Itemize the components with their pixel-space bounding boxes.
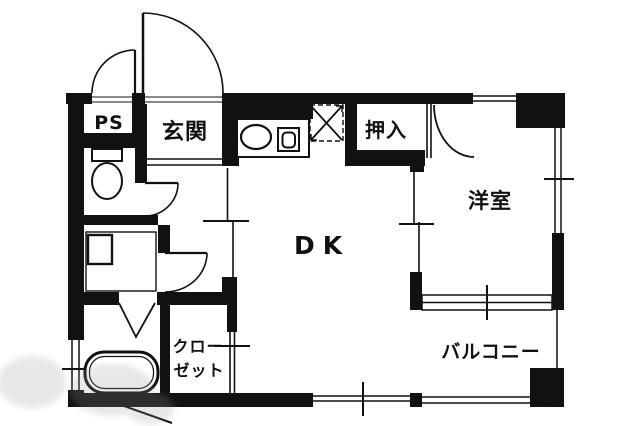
gas-stove-burner bbox=[283, 133, 296, 148]
kitchen-counter bbox=[237, 119, 309, 157]
wall-ps-right bbox=[132, 104, 147, 148]
entrance-door-arc bbox=[143, 13, 223, 93]
wall-toilet-right bbox=[135, 148, 147, 183]
washroom-door bbox=[165, 253, 207, 292]
washing-machine-pan-icon bbox=[86, 232, 156, 291]
balcony-outer-rail bbox=[422, 397, 548, 403]
washroom-door-arc bbox=[165, 253, 207, 292]
label-ps: PS bbox=[94, 112, 124, 134]
threshold-entrance-door bbox=[145, 97, 222, 102]
wall-top-b bbox=[132, 93, 145, 104]
wall-washroom-top bbox=[68, 215, 158, 225]
ps-door-arc bbox=[92, 50, 135, 93]
toilet-door bbox=[145, 183, 178, 216]
label-western-room: 洋室 bbox=[468, 189, 512, 213]
window-top bbox=[473, 96, 516, 101]
wall-bottom-post bbox=[410, 393, 422, 407]
label-oshiire: 押入 bbox=[365, 118, 407, 142]
wall-closet-right-top bbox=[227, 305, 237, 332]
refrigerator-space-x-icon bbox=[310, 105, 343, 141]
wall-right bbox=[552, 233, 564, 310]
window-right-fill bbox=[552, 128, 564, 233]
wall-ps-bottom bbox=[84, 133, 132, 148]
label-entrance: 玄関 bbox=[162, 119, 208, 145]
bathroom-folding-door bbox=[119, 303, 155, 337]
wall-mid-a bbox=[84, 292, 119, 305]
entrance-door bbox=[143, 13, 223, 93]
window-dk-bottom bbox=[313, 396, 410, 401]
wall-closet-left bbox=[160, 305, 170, 398]
label-closet-line2: ゼット bbox=[173, 361, 224, 380]
sliding-dk-west bbox=[414, 172, 419, 272]
wall-dk-west-top bbox=[410, 160, 424, 172]
western-room-door-arc bbox=[434, 105, 474, 157]
wall-hall-dk-bottom bbox=[222, 277, 237, 305]
door-leaf-western-room bbox=[427, 104, 431, 158]
ps-door bbox=[92, 50, 135, 93]
wall-washroom-right bbox=[158, 225, 170, 253]
toilet-door-arc bbox=[145, 183, 178, 216]
floor-plan-page: PS 玄関 押入 洋室 DK クロー ゼット バルコニー bbox=[0, 0, 640, 426]
refrigerator-x bbox=[311, 106, 342, 140]
toilet-bowl bbox=[92, 163, 122, 199]
corner-pillar-bottom-right bbox=[530, 368, 564, 407]
sliding-hall-dk bbox=[228, 168, 234, 277]
genkan-step bbox=[147, 159, 222, 165]
threshold-ps-door bbox=[92, 97, 132, 102]
toilet-icon bbox=[92, 149, 122, 199]
label-closet-line1: クロー bbox=[172, 337, 223, 356]
kitchen-sink-icon bbox=[241, 125, 271, 149]
washer-unit bbox=[88, 235, 112, 264]
label-dk: DK bbox=[294, 231, 350, 260]
toilet-tank bbox=[92, 149, 122, 161]
sliding-closet bbox=[230, 332, 235, 393]
western-room-door bbox=[434, 105, 474, 157]
label-balcony: バルコニー bbox=[441, 341, 541, 363]
corner-pillar-top-right bbox=[516, 93, 565, 128]
floor-plan: PS 玄関 押入 洋室 DK クロー ゼット バルコニー bbox=[0, 0, 640, 426]
washer-pan bbox=[86, 232, 156, 291]
wall-dk-west-bottom bbox=[410, 272, 422, 310]
folding-door-icon bbox=[119, 303, 155, 337]
